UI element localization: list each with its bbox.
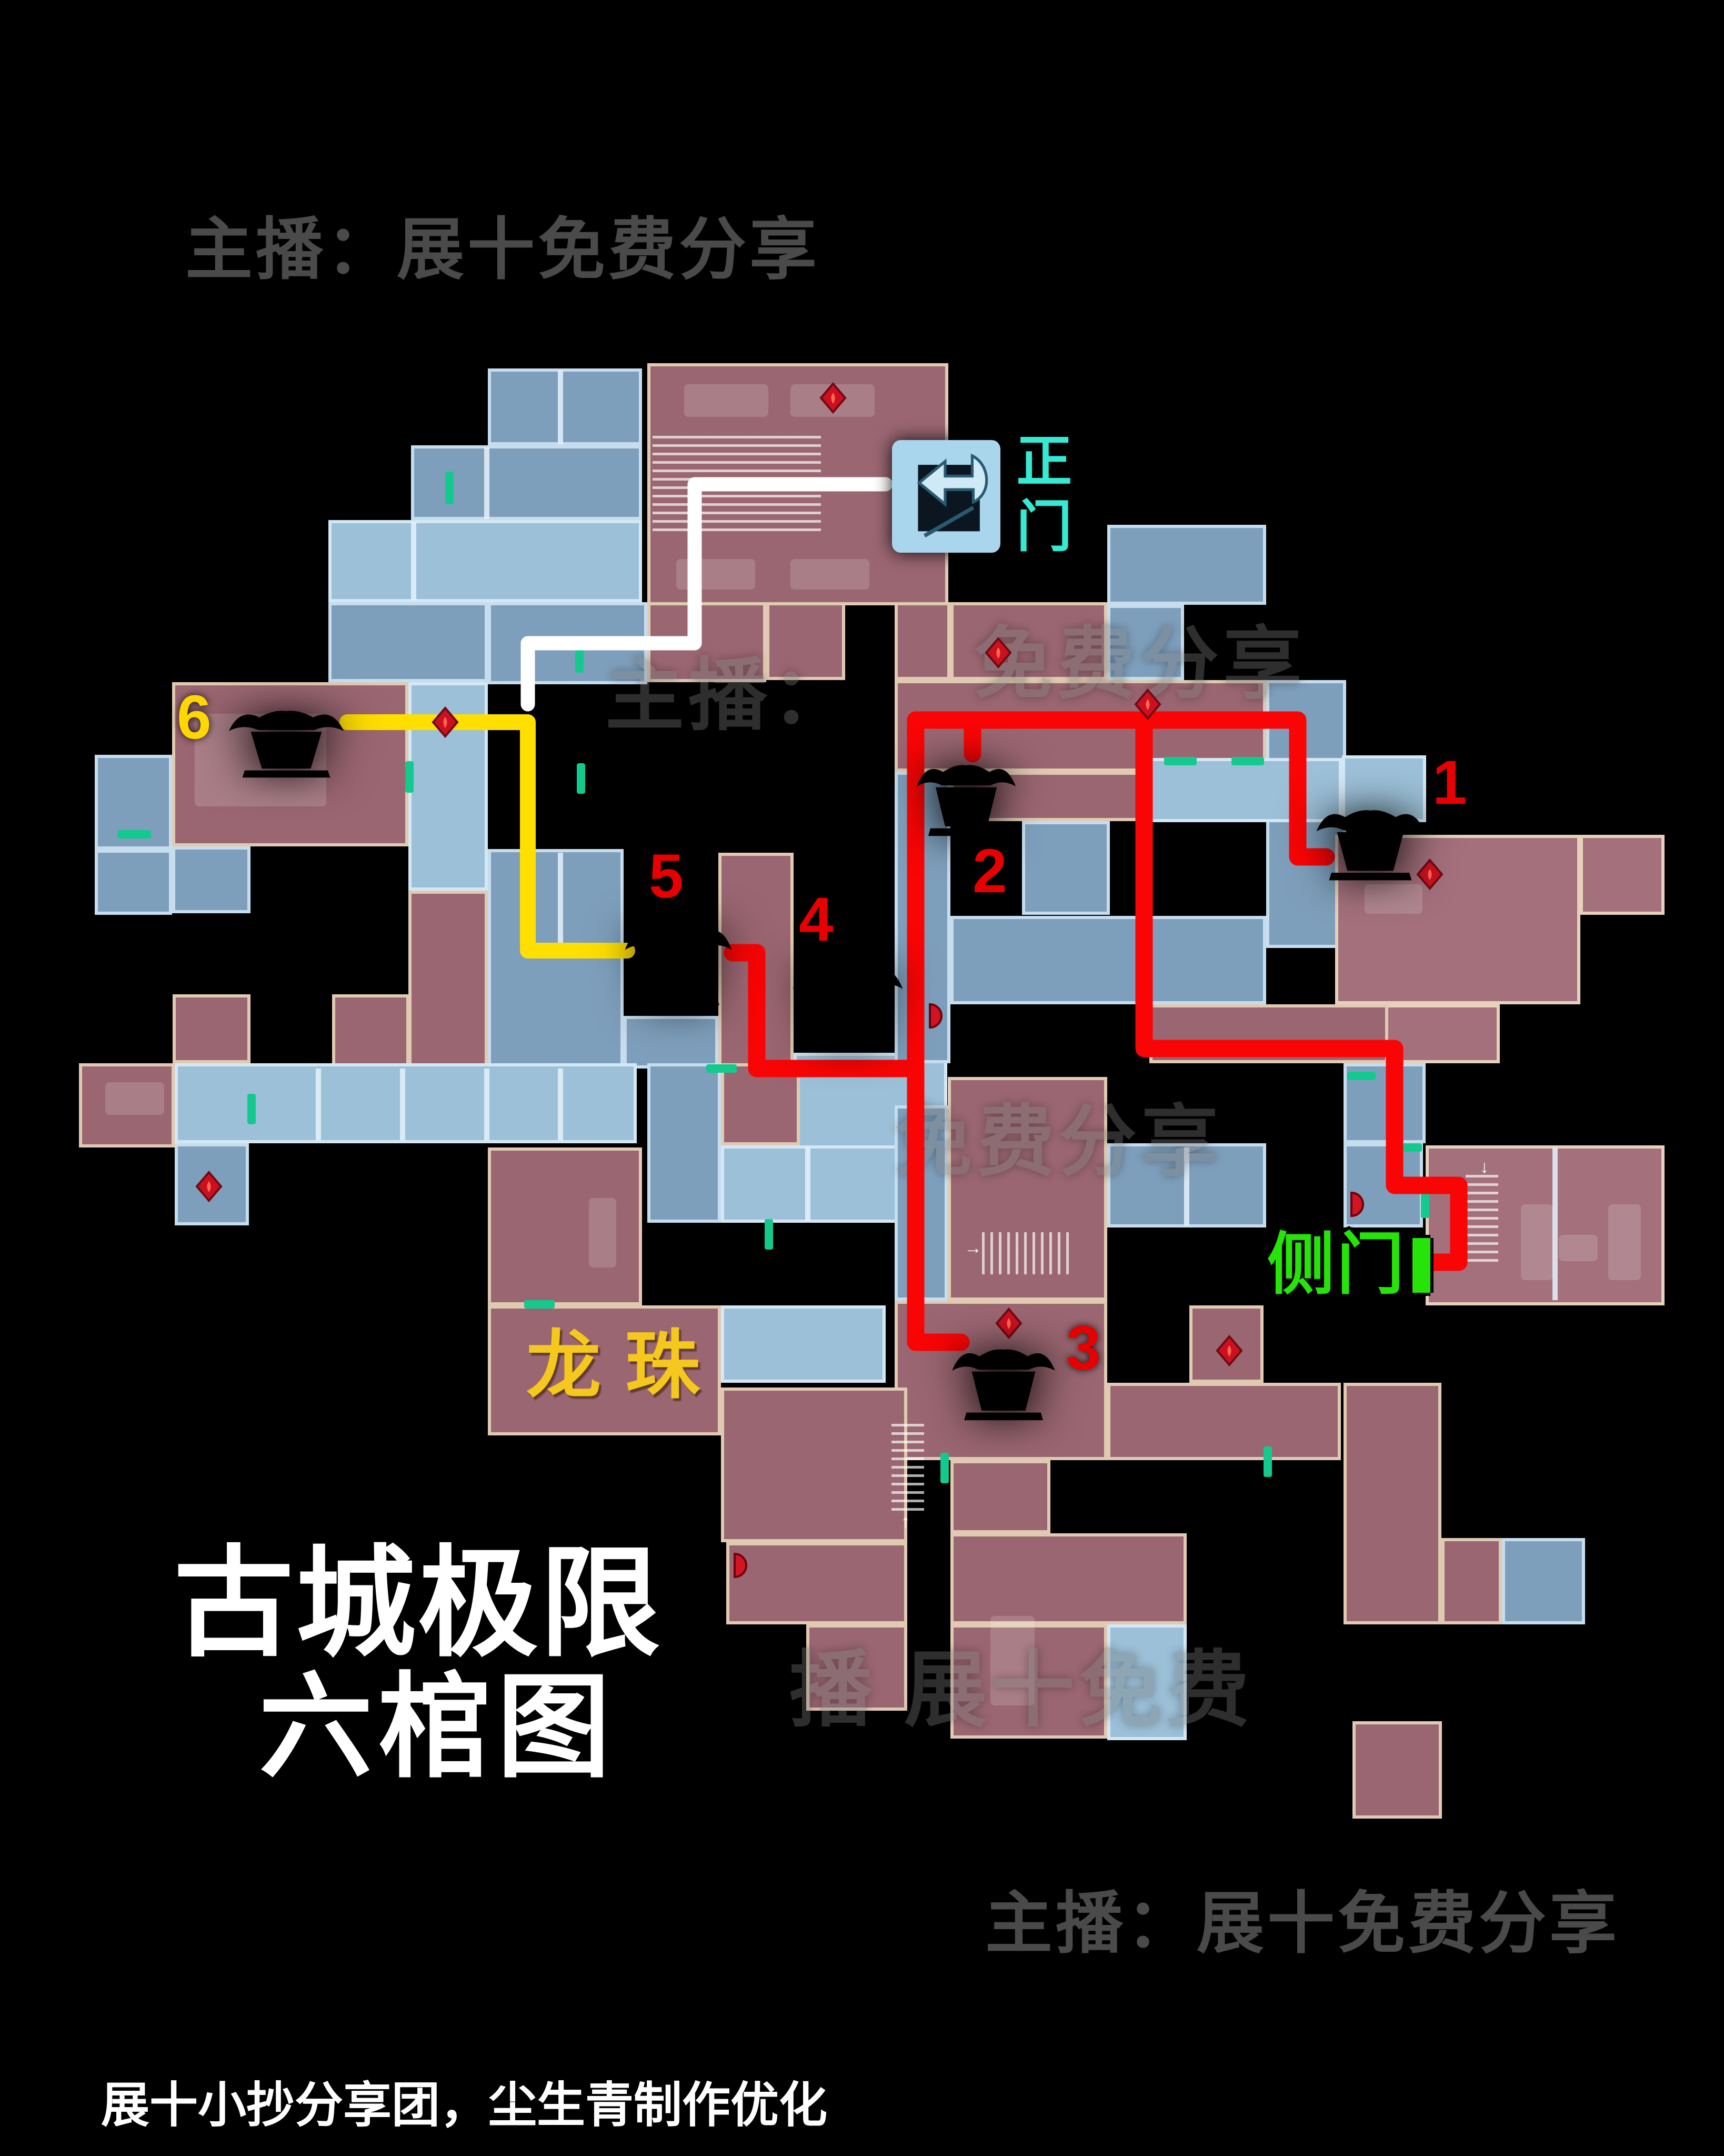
objective-semicircle-icon [735,1554,746,1577]
side-gate-door-bar [1412,1238,1430,1293]
coffin-6-icon [229,711,344,785]
bombsite-diamond-icon [986,638,1010,667]
map-title-line1: 古城极限 [174,1541,662,1667]
bombsite-diamond-icon [433,708,457,736]
objective-semicircle-icon [930,1004,941,1027]
coffin-1-icon [1317,810,1425,889]
map-title-line2: 六棺图 [259,1668,616,1787]
coffin-5-icon [625,926,731,1014]
coffin-4-icon [793,966,903,1052]
coffin-4-number: 4 [799,889,834,951]
coffin-2-icon [917,765,1016,844]
streamer-watermark-bottom: 主播：展十免费分享 [985,1889,1620,1959]
map-stage: 主播：展十免费分享 古城极限 六棺图 正门 侧门 龙珠 主播：展十免费分享 展十… [0,0,1724,2156]
side-gate-label: 侧门 [1267,1230,1406,1300]
routes-overlay: .cf-roof,.cf-body,.cf-base{stroke-width:… [0,0,1724,2156]
bombsite-diamond-icon [997,1309,1021,1337]
bombsite-diamond-icon [1418,860,1442,889]
dragon-pearl-label: 龙珠 [526,1326,724,1405]
coffin-6-number: 6 [177,686,212,748]
main-gate-label: 正门 [1009,432,1068,562]
main-gate-icon [892,440,1000,553]
bombsite-diamond-icon [1217,1336,1241,1365]
route-yellow-coffin6-to-5 [347,722,627,951]
coffin-5-number: 5 [649,845,684,907]
streamer-watermark-top: 主播：展十免费分享 [185,215,820,285]
bombsite-diamond-icon [197,1172,221,1201]
coffin-1-number: 1 [1432,752,1467,814]
coffin-3-icon [952,1349,1055,1429]
route-white-main-gate [528,484,886,704]
credit-text: 展十小抄分享团，尘生青制作优化 [101,2080,827,2131]
coffin-2-number: 2 [973,840,1007,902]
objective-semicircle-icon [1351,1193,1363,1216]
coffin-3-number: 3 [1066,1317,1101,1379]
bombsite-diamond-icon [821,384,845,412]
